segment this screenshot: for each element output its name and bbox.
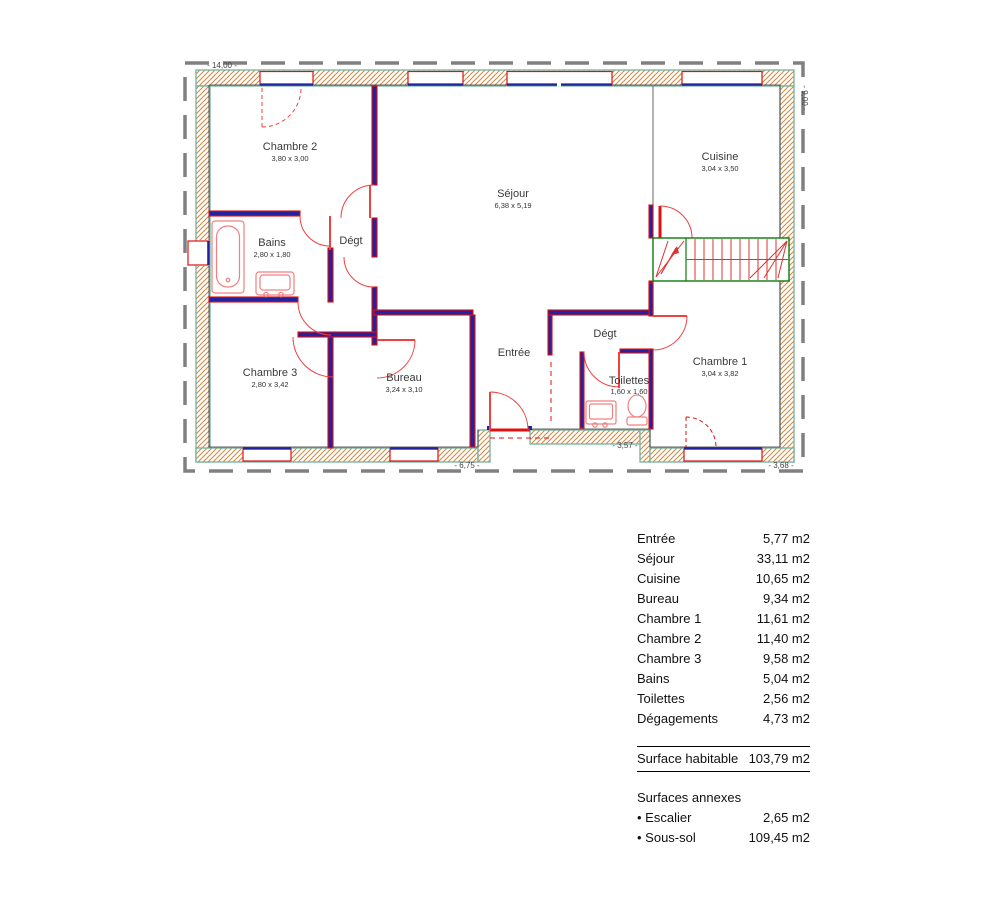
table-row: Séjour 33,11 m2 (637, 549, 810, 569)
door-closet-chambre2 (262, 88, 301, 127)
area-label: Entrée (637, 529, 675, 549)
table-row: Chambre 2 11,40 m2 (637, 629, 810, 649)
annex-row: • Escalier 2,65 m2 (637, 808, 810, 828)
door-degt-chambre2 (341, 185, 374, 218)
area-label: Chambre 3 (637, 649, 701, 669)
table-row: Chambre 3 9,58 m2 (637, 649, 810, 669)
room-label-bureau: Bureau (386, 372, 421, 384)
dim-top: - 14,00 - (207, 61, 237, 70)
window-chambre3 (243, 448, 291, 461)
room-dims-chambre1: 3,04 x 3,82 (701, 369, 738, 378)
area-value: 5,04 m2 (763, 669, 810, 689)
door-bains (300, 216, 330, 250)
door-degt-sejour (344, 257, 374, 287)
window-chambre2 (260, 71, 313, 85)
table-row: Cuisine 10,65 m2 (637, 569, 810, 589)
room-label-degt1: Dégt (339, 235, 362, 247)
table-row: Dégagements 4,73 m2 (637, 709, 810, 729)
floor-plan: Chambre 2 3,80 x 3,00 Séjour 6,38 x 5,19… (0, 0, 1000, 900)
total-value: 103,79 m2 (749, 749, 810, 769)
table-row: Chambre 1 11,61 m2 (637, 609, 810, 629)
annex-value: 2,65 m2 (763, 808, 810, 828)
annex-label: • Escalier (637, 808, 691, 828)
annex-label: • Sous-sol (637, 828, 696, 848)
area-label: Séjour (637, 549, 675, 569)
area-value: 11,40 m2 (757, 629, 810, 649)
room-label-degt2: Dégt (593, 328, 616, 340)
window-chambre1 (684, 448, 762, 461)
door-fenetre-chambre1 (686, 417, 716, 447)
area-label: Toilettes (637, 689, 685, 709)
annex-value: 109,45 m2 (749, 828, 810, 848)
door-chambre3 (293, 302, 333, 377)
area-value: 33,11 m2 (757, 549, 810, 569)
wall-porch-step (478, 430, 490, 462)
toilettes-sink-icon (586, 401, 616, 427)
room-label-bains: Bains (258, 237, 286, 249)
door-chambre1 (653, 316, 687, 350)
dim-bottom-right: - 3,68 - (768, 461, 794, 470)
room-dims-sejour: 6,38 x 5,19 (494, 201, 531, 210)
wall-step-connector (640, 430, 650, 462)
area-label: Dégagements (637, 709, 718, 729)
toilet-icon (627, 395, 647, 425)
area-value: 10,65 m2 (756, 569, 810, 589)
window-sejour-wide (507, 71, 612, 87)
table-row: Bureau 9,34 m2 (637, 589, 810, 609)
area-value: 9,58 m2 (763, 649, 810, 669)
dim-right: - 9,00 - (800, 85, 809, 111)
door-stairs (660, 206, 692, 238)
area-label: Chambre 1 (637, 609, 701, 629)
window-bains (188, 240, 209, 266)
dim-bottom-mid: - 3,57 - (612, 441, 638, 450)
total-label: Surface habitable (637, 749, 738, 769)
room-label-chambre1: Chambre 1 (693, 356, 747, 368)
area-value: 9,34 m2 (763, 589, 810, 609)
table-row: Bains 5,04 m2 (637, 669, 810, 689)
room-dims-cuisine: 3,04 x 3,50 (701, 164, 738, 173)
window-sejour-left (408, 71, 463, 85)
room-label-toilettes: Toilettes (609, 375, 650, 387)
area-value: 5,77 m2 (763, 529, 810, 549)
wall-left (196, 86, 210, 462)
room-dims-bureau: 3,24 x 3,10 (385, 385, 422, 394)
room-label-entree: Entrée (498, 347, 530, 359)
area-label: Cuisine (637, 569, 680, 589)
area-label: Chambre 2 (637, 629, 701, 649)
window-cuisine (682, 71, 762, 85)
room-label-chambre2: Chambre 2 (263, 141, 317, 153)
room-dims-chambre2: 3,80 x 3,00 (271, 154, 308, 163)
dim-bottom-left: - 6,75 - (454, 461, 480, 470)
floor-plan-page: Chambre 2 3,80 x 3,00 Séjour 6,38 x 5,19… (0, 0, 1000, 900)
bains-sink-icon (256, 272, 294, 297)
staircase (653, 238, 789, 281)
table-row: Toilettes 2,56 m2 (637, 689, 810, 709)
total-row: Surface habitable 103,79 m2 (637, 746, 810, 772)
annex-row: • Sous-sol 109,45 m2 (637, 828, 810, 848)
room-dims-chambre3: 2,80 x 3,42 (251, 380, 288, 389)
room-label-cuisine: Cuisine (702, 151, 739, 163)
area-label: Bains (637, 669, 670, 689)
area-value: 4,73 m2 (763, 709, 810, 729)
window-bureau (390, 448, 438, 461)
area-value: 11,61 m2 (757, 609, 810, 629)
annex-title: Surfaces annexes (637, 788, 810, 808)
room-dims-bains: 2,80 x 1,80 (253, 250, 290, 259)
table-row: Entrée 5,77 m2 (637, 529, 810, 549)
areas-table: Entrée 5,77 m2 Séjour 33,11 m2 Cuisine 1… (637, 529, 810, 848)
door-entree (490, 392, 530, 430)
room-label-chambre3: Chambre 3 (243, 367, 297, 379)
area-label: Bureau (637, 589, 679, 609)
area-value: 2,56 m2 (763, 689, 810, 709)
room-label-sejour: Séjour (497, 188, 529, 200)
room-dims-toilettes: 1,60 x 1,60 (610, 387, 647, 396)
bathtub-icon (212, 221, 244, 293)
